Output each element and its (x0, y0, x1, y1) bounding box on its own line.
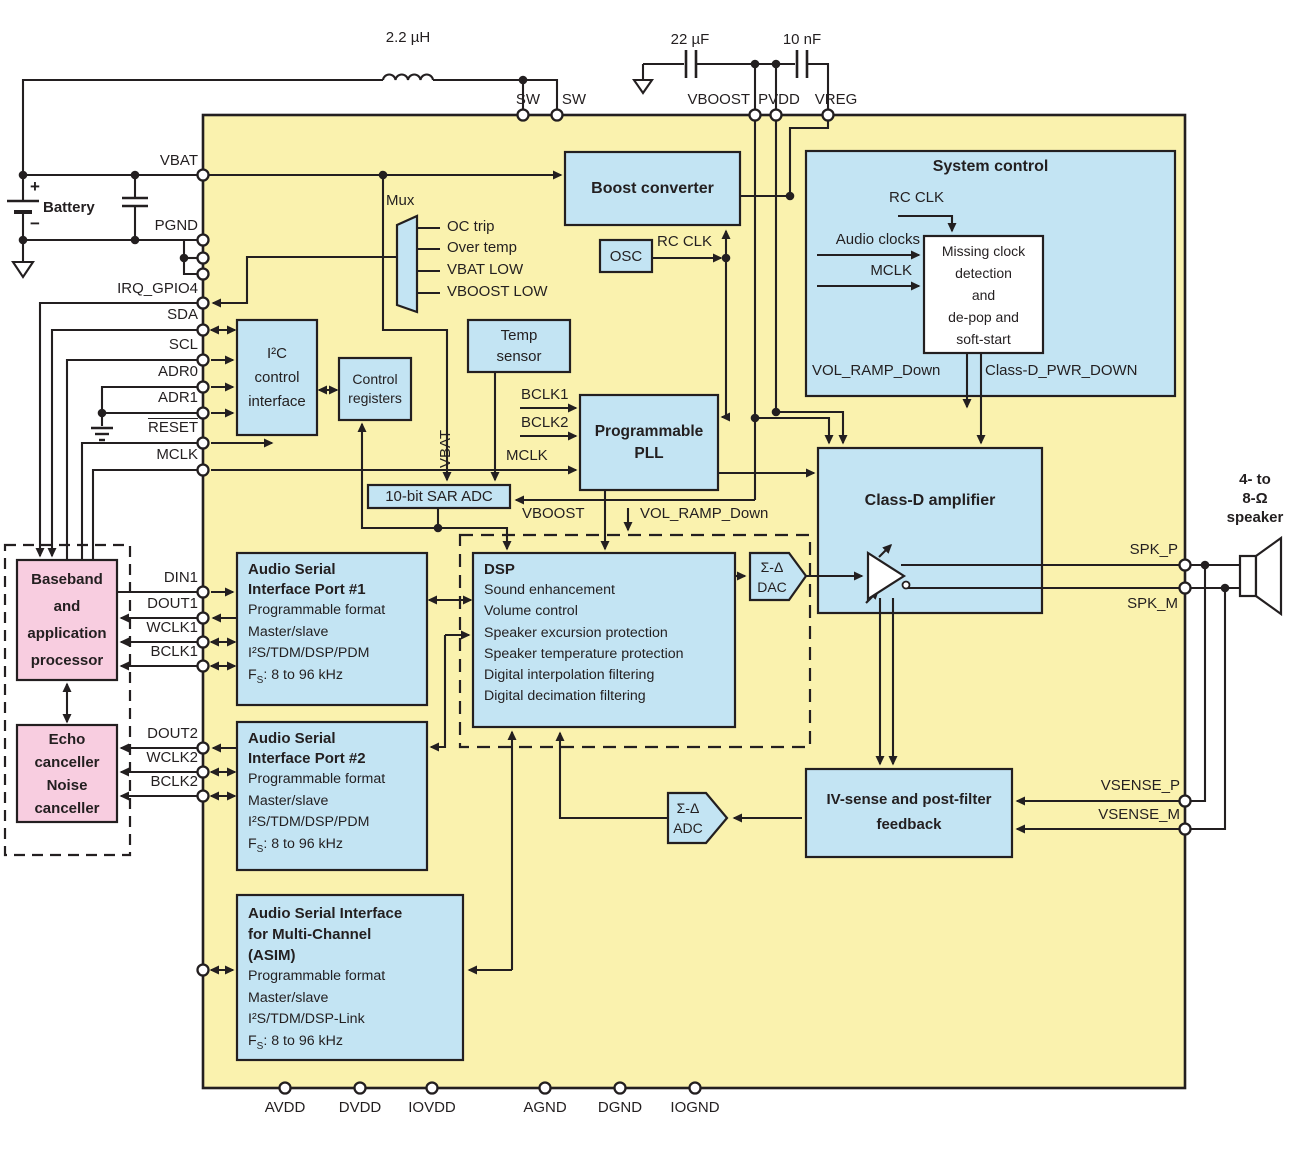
sigma-delta-dac-label: Σ-ΔDAC (750, 555, 794, 599)
battery-label: Battery (43, 199, 95, 216)
pin-label-vbat: VBAT (88, 152, 198, 169)
mux-item-vboost-low: VBOOST LOW (447, 283, 548, 300)
pin-label-dgnd: DGND (580, 1099, 660, 1116)
pin-label-sw2: SW (554, 91, 594, 108)
vboost-tap-label: VBOOST (522, 505, 585, 522)
spk-m-label: SPK_M (1090, 595, 1178, 612)
pin-label-vboost: VBOOST (650, 91, 750, 108)
temp-sensor-label: Tempsensor (468, 320, 570, 372)
inductor-value: 2.2 µH (368, 29, 448, 46)
sysctrl-rc-clk-label: RC CLK (889, 189, 944, 206)
bclk1-pll-label: BCLK1 (521, 386, 569, 403)
boost-converter-label: Boost converter (565, 152, 740, 225)
vsense-m-label: VSENSE_M (1060, 806, 1180, 823)
mux-item-over-temp: Over temp (447, 239, 517, 256)
pll-label: ProgrammablePLL (580, 395, 718, 490)
mux-item-vbat-low: VBAT LOW (447, 261, 523, 278)
echo-canceller-label: Echocanceller Noisecanceller (17, 725, 117, 822)
vbat-tap-label: VBAT (437, 430, 454, 468)
missing-clock-label: Missing clockdetection andde-pop and sof… (924, 238, 1043, 351)
class-d-pwr-down-label: Class-D_PWR_DOWN (985, 362, 1138, 379)
bclk2-pll-label: BCLK2 (521, 414, 569, 431)
speaker-label: 4- to8-Ωspeaker (1212, 470, 1298, 527)
pin-label-mclk: MCLK (88, 446, 198, 463)
pin-label-sda: SDA (88, 306, 198, 323)
pin-label-scl: SCL (88, 336, 198, 353)
pin-label-reset: RESET (88, 419, 198, 436)
pin-label-avdd: AVDD (245, 1099, 325, 1116)
rc-clk-label: RC CLK (657, 233, 712, 250)
system-control-title: System control (806, 158, 1175, 175)
pin-label-agnd: AGND (505, 1099, 585, 1116)
asi-port1-label: Audio Serial Interface Port #1 Programma… (237, 553, 427, 705)
sar-adc-label: 10-bit SAR ADC (368, 485, 510, 508)
inductor-symbol (383, 74, 433, 80)
vol-ramp-tap-label: VOL_RAMP_Down (640, 505, 768, 522)
sysctrl-mclk-label: MCLK (812, 262, 912, 279)
pin-label-adr0: ADR0 (88, 363, 198, 380)
pin-label-dvdd: DVDD (320, 1099, 400, 1116)
pin-label-adr1: ADR1 (88, 389, 198, 406)
baseband-label: Basebandand applicationprocessor (17, 560, 117, 680)
speaker-icon (1240, 556, 1256, 596)
pin-label-irq: IRQ_GPIO4 (88, 280, 198, 297)
vsense-p-label: VSENSE_P (1060, 777, 1180, 794)
asi-port2-label: Audio Serial Interface Port #2 Programma… (237, 722, 427, 870)
speaker-cone-icon (1256, 538, 1281, 614)
pin-label-vreg: VREG (806, 91, 866, 108)
pin-label-pgnd: PGND (88, 217, 198, 234)
asim-label: Audio Serial Interface for Multi-Channel… (237, 895, 463, 1060)
mux-item-oc-trip: OC trip (447, 218, 495, 235)
block-diagram: 2.2 µH 22 µF 10 nF SW SW VBOOST PVDD VRE… (0, 0, 1300, 1150)
pin-label-iognd: IOGND (655, 1099, 735, 1116)
pin-label-pvdd: PVDD (754, 91, 804, 108)
vol-ramp-down-label: VOL_RAMP_Down (812, 362, 940, 379)
pin-label-iovdd: IOVDD (392, 1099, 472, 1116)
pin-label-sw1: SW (508, 91, 548, 108)
cap1-value: 22 µF (650, 31, 730, 48)
ground-symbol (13, 262, 33, 277)
osc-label: OSC (600, 240, 652, 272)
audio-clocks-label: Audio clocks (808, 231, 920, 248)
cap2-value: 10 nF (762, 31, 842, 48)
mux-title: Mux (386, 192, 414, 209)
i2c-label: I²Ccontrolinterface (237, 320, 317, 435)
iv-sense-label: IV-sense and post-filterfeedback (806, 782, 1012, 842)
mux-symbol (397, 216, 417, 312)
spk-p-label: SPK_P (1090, 541, 1178, 558)
battery-plus: + (30, 178, 40, 195)
class-d-label: Class-D amplifier (818, 492, 1042, 509)
mclk-pll-label: MCLK (506, 447, 548, 464)
dsp-label: DSP Sound enhancement Volume control Spe… (473, 553, 735, 727)
control-registers-label: Controlregisters (339, 358, 411, 420)
battery-minus: − (30, 215, 40, 232)
sigma-delta-adc-label: Σ-ΔADC (666, 796, 710, 840)
